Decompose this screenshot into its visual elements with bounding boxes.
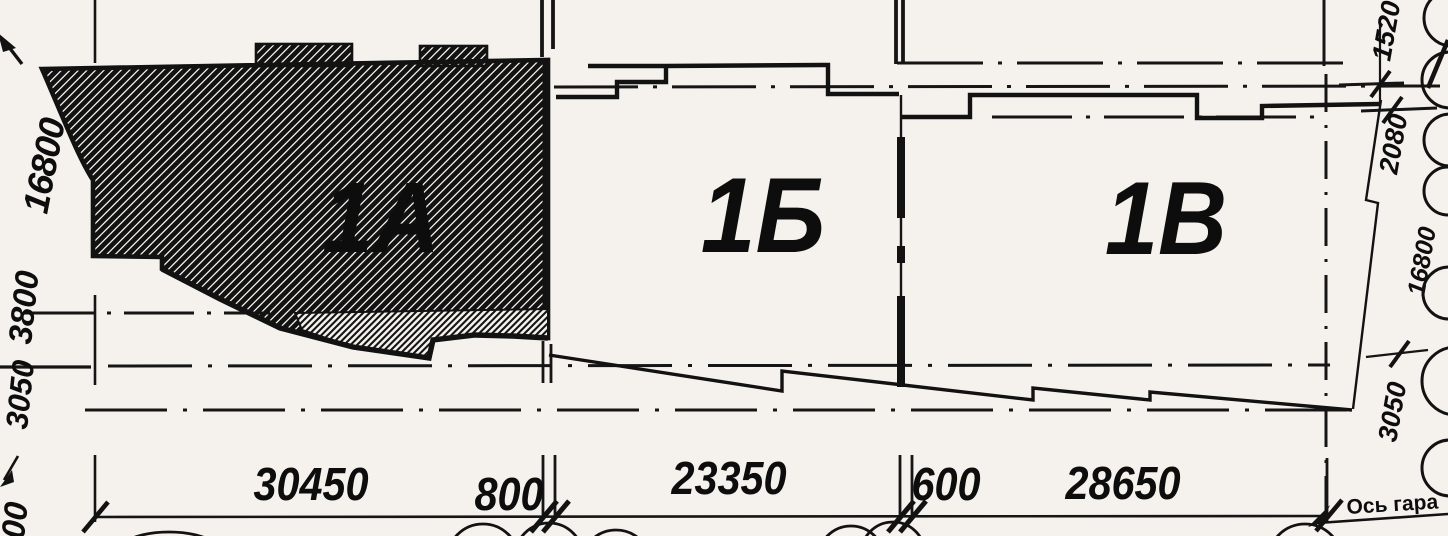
svg-text:28650: 28650 [1064,458,1180,510]
svg-text:1В: 1В [1105,161,1227,277]
svg-text:3050: 3050 [0,358,41,430]
svg-text:30450: 30450 [253,459,368,511]
svg-text:800: 800 [474,469,543,521]
svg-text:600: 600 [911,459,980,511]
svg-text:23350: 23350 [670,453,786,505]
svg-text:1А: 1А [322,162,440,273]
svg-text:1Б: 1Б [701,155,825,275]
svg-text:800: 800 [0,499,35,536]
svg-text:3800: 3800 [1,268,46,346]
